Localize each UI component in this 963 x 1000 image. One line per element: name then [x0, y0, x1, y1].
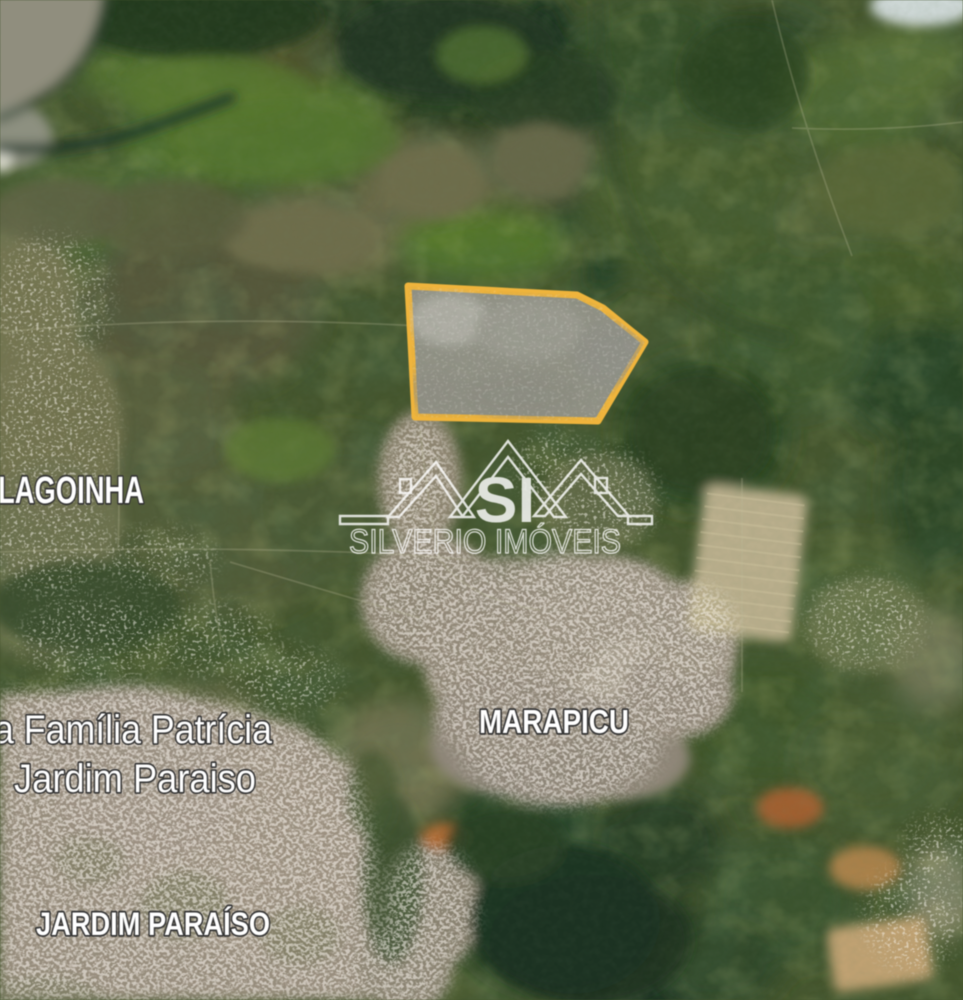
svg-text:SILVERIO IMÓVEIS: SILVERIO IMÓVEIS [349, 523, 621, 561]
svg-text:JARDIM PARAÍSO: JARDIM PARAÍSO [36, 906, 270, 942]
svg-text:a Família Patrícia: a Família Patrícia [0, 708, 273, 752]
svg-text:MARAPICU: MARAPICU [479, 703, 629, 740]
svg-text:LAGOINHA: LAGOINHA [0, 470, 144, 512]
svg-text:Jardim Paraiso: Jardim Paraiso [14, 757, 256, 801]
